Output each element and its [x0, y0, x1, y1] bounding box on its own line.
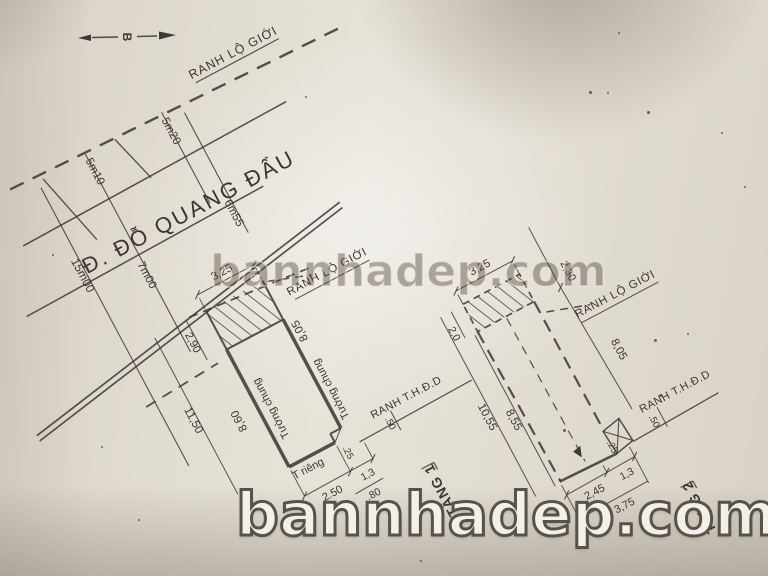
plot2-bottom-wall	[560, 452, 617, 484]
plot1-notch-dim: .25	[340, 444, 356, 461]
direction-arrow: B	[78, 32, 176, 42]
dust-speck	[654, 339, 657, 342]
dust-speck	[138, 519, 140, 521]
dim-ext	[364, 443, 373, 460]
road-boundary-label: RANH LỘ GIỚI	[186, 23, 280, 82]
plot1-right-wall	[283, 319, 341, 428]
dust-speck	[647, 111, 650, 114]
plot2-left-wall-dashed	[478, 330, 561, 482]
dust-speck	[101, 446, 103, 448]
dust-speck	[744, 186, 746, 188]
arrow-left-tip	[78, 35, 91, 42]
plot2-total-length-dim: 10,55	[475, 402, 499, 433]
plot2-center-marker	[572, 446, 585, 460]
setback-dashed-line	[144, 363, 221, 407]
dim-tick	[602, 468, 612, 477]
plot2-rear-boundary-line	[632, 393, 720, 442]
dust-speck	[52, 254, 54, 256]
dust-speck	[618, 32, 620, 34]
plot2-right-wall-dashed	[534, 301, 604, 431]
plot1-left-wall	[227, 350, 289, 467]
watermark-middle: bannhadep.com	[210, 246, 607, 297]
dust-speck	[607, 92, 609, 94]
road-boundary-dashed-line	[10, 18, 338, 200]
plot1-step-wall	[330, 434, 335, 443]
dim-tick	[630, 452, 640, 461]
dim-tick	[193, 290, 203, 299]
plot2-rear-offset-dim: .50	[646, 413, 662, 430]
dust-speck	[589, 91, 592, 94]
plot1-rear-offset-dim: .50	[382, 415, 398, 432]
dust-speck	[659, 394, 662, 397]
junction-line	[115, 133, 151, 185]
plot2-right-length-dim: 8,05	[608, 337, 629, 362]
arrow-shaft	[137, 36, 157, 37]
plot1-left-wall-length: 8,60	[229, 408, 250, 433]
arrow-shaft	[92, 37, 118, 38]
dust-speck	[563, 429, 566, 432]
plot1-private-wall-label: T riêng	[291, 456, 327, 483]
dim-7m00: 7m00	[134, 260, 158, 291]
dust-speck	[721, 132, 723, 134]
dust-speck	[687, 333, 689, 335]
photographed-site-plan: B RANH LỘ GIỚI	[0, 0, 768, 576]
arrow-right-tip	[159, 32, 176, 40]
dust-speck	[305, 96, 307, 98]
compass-label: B	[120, 33, 134, 42]
dust-speck	[420, 560, 422, 562]
plot1-rear-boundary-label: RANH T.H.Đ.D	[369, 374, 444, 421]
dim-5m10: 5m10	[83, 156, 107, 187]
dim-5m20: 5m20	[159, 116, 183, 147]
plot2-rear-boundary-label: RANH T.H.Đ.D	[638, 368, 713, 415]
plot2-center-dashed-line	[507, 317, 585, 462]
watermark-bottom: bannhadep.com	[236, 480, 768, 550]
plot1-total-length-dim: 11,50	[181, 405, 205, 435]
dim-tick	[368, 454, 378, 463]
